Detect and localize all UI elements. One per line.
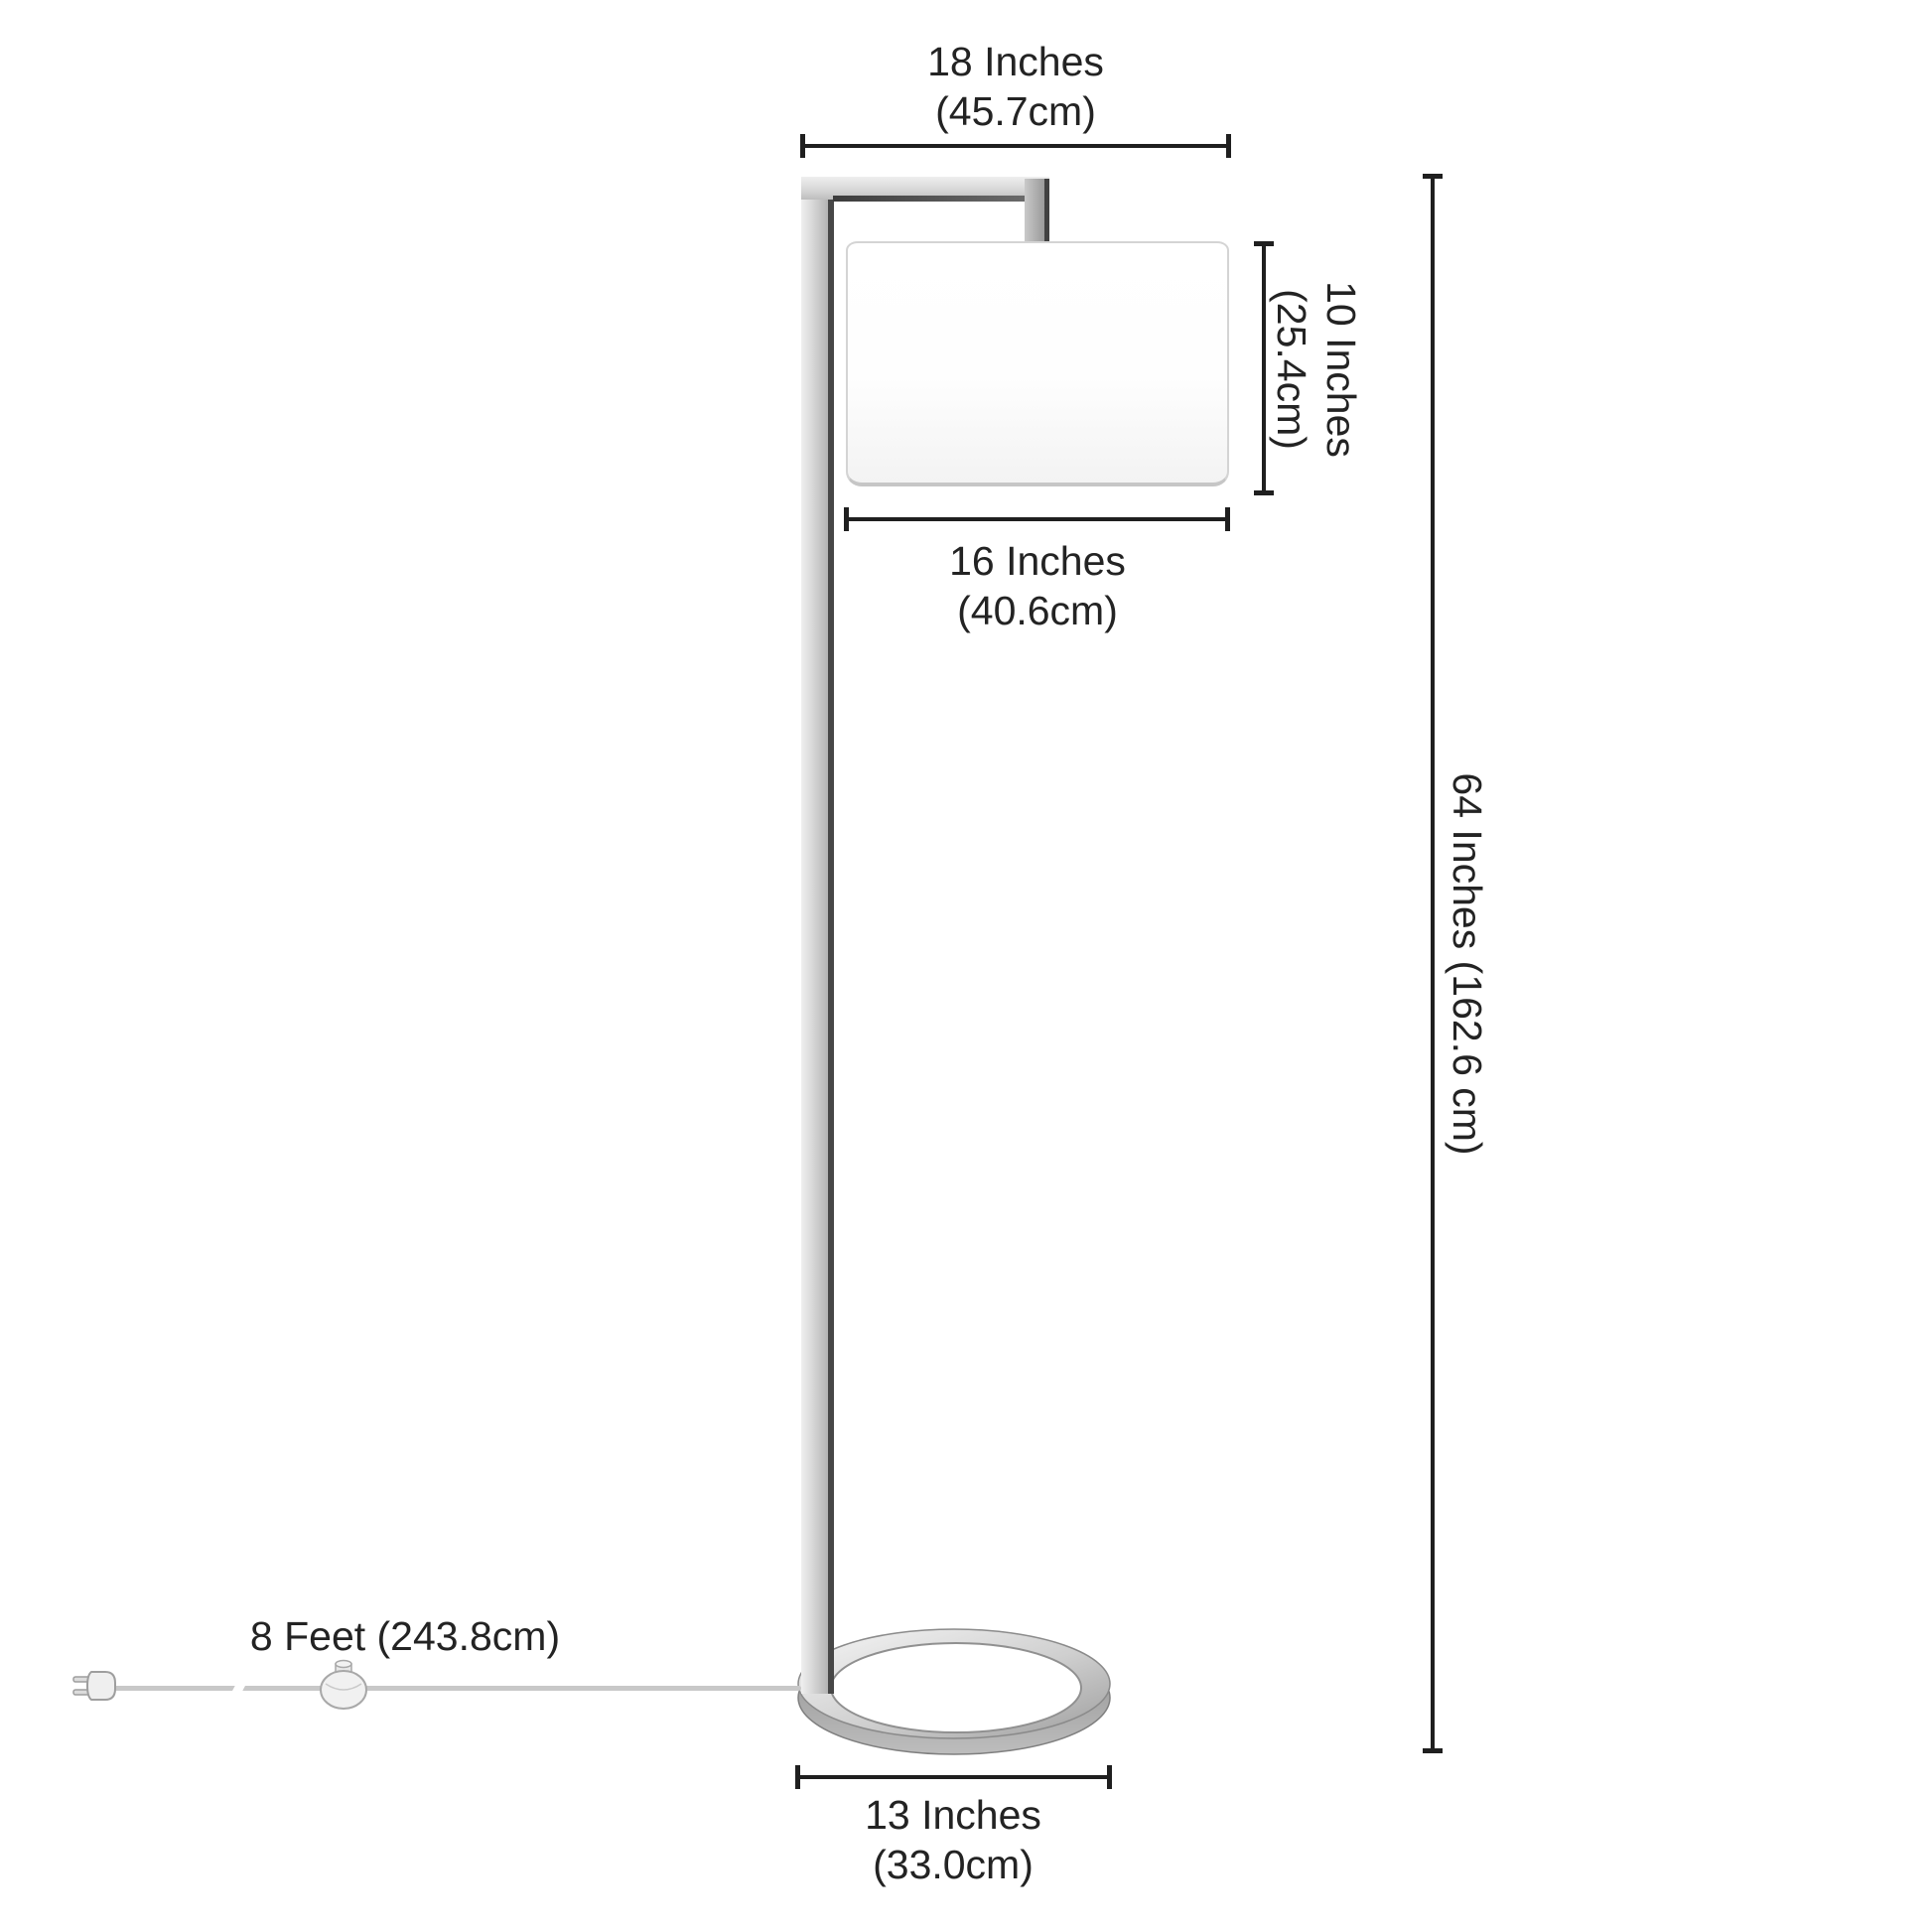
label-shade-width-metric: (40.6cm) — [839, 586, 1236, 635]
label-lamp-height-value: 64 Inches (162.6 cm) — [1443, 772, 1492, 1155]
dimension-line-shade-width-bar — [846, 517, 1229, 521]
dimension-line-lamp-height-bar — [1431, 176, 1435, 1752]
dimension-line-arm-width-bar — [802, 144, 1229, 148]
label-base-width: 13 Inches (33.0cm) — [755, 1790, 1152, 1889]
label-base-width-metric: (33.0cm) — [755, 1840, 1152, 1889]
label-arm-width: 18 Inches (45.7cm) — [817, 37, 1214, 136]
dimension-line-base-width-tick-right — [1107, 1765, 1112, 1789]
lamp-arm-underside-edge — [833, 196, 1025, 202]
dimension-line-shade-height-bar — [1262, 243, 1266, 494]
label-shade-height: 10 Inches (25.4cm) — [1267, 281, 1366, 458]
switch-knob-top — [336, 1661, 351, 1668]
dimension-line-lamp-height-tick-bottom — [1423, 1748, 1443, 1753]
power-cord — [112, 1686, 801, 1691]
label-cord-length-value: 8 Feet (243.8cm) — [157, 1611, 653, 1661]
dimension-line-arm-width-tick-left — [800, 134, 805, 158]
dimension-line-shade-height-tick-bottom — [1254, 490, 1274, 495]
label-shade-height-metric: (25.4cm) — [1267, 281, 1316, 458]
label-shade-width-value: 16 Inches — [839, 536, 1236, 586]
label-base-width-value: 13 Inches — [755, 1790, 1152, 1840]
label-shade-width: 16 Inches (40.6cm) — [839, 536, 1236, 635]
lamp-pole — [801, 177, 834, 1694]
plug-body — [87, 1672, 115, 1700]
dimension-line-shade-width-tick-left — [844, 507, 849, 531]
dimension-line-shade-height-tick-top — [1254, 241, 1274, 246]
dimension-line-base-width-bar — [797, 1775, 1110, 1779]
dimension-line-lamp-height-tick-top — [1423, 174, 1443, 179]
dimension-line-arm-width-tick-right — [1226, 134, 1231, 158]
lamp-base-ring — [792, 1618, 1120, 1759]
base-ring-hole — [831, 1643, 1081, 1732]
dimension-line-shade-width-tick-right — [1225, 507, 1230, 531]
power-plug — [64, 1668, 119, 1708]
inline-switch — [316, 1656, 371, 1714]
lamp-shade — [846, 241, 1229, 486]
label-arm-width-metric: (45.7cm) — [817, 86, 1214, 136]
label-lamp-height: 64 Inches (162.6 cm) — [1443, 772, 1492, 1155]
dimension-diagram: 18 Inches (45.7cm) — [0, 0, 1932, 1932]
label-cord-length: 8 Feet (243.8cm) — [157, 1611, 653, 1661]
label-arm-width-value: 18 Inches — [817, 37, 1214, 86]
label-shade-height-value: 10 Inches — [1316, 281, 1366, 458]
lamp-arm-stub — [1025, 179, 1049, 244]
dimension-line-base-width-tick-left — [795, 1765, 800, 1789]
